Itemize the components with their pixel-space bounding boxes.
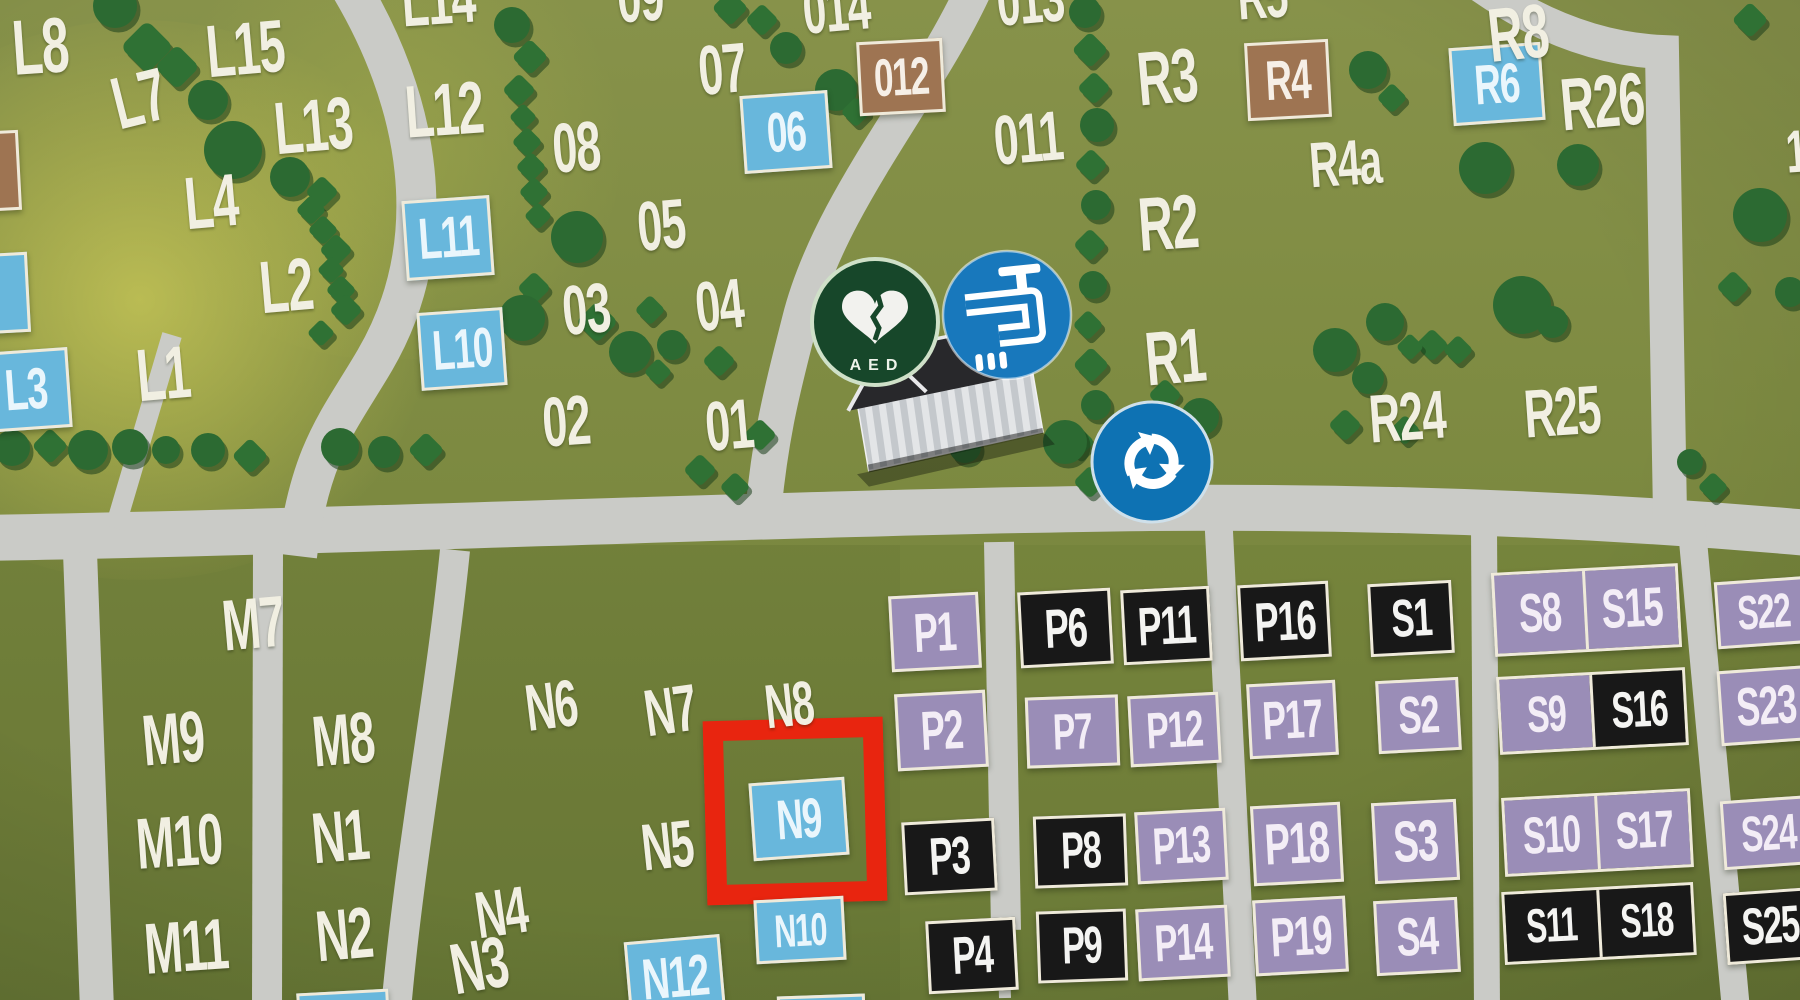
tree — [1313, 328, 1357, 372]
tree — [112, 429, 148, 465]
site-box-N12: N12 — [624, 934, 727, 1000]
site-box-P11: P11 — [1120, 585, 1213, 665]
site-box-P13: P13 — [1134, 808, 1229, 885]
tree — [191, 433, 225, 467]
site-label-01: 01 — [702, 388, 755, 462]
site-box-P2: P2 — [894, 689, 989, 771]
site-label-N4: N4 — [471, 876, 531, 949]
tree — [770, 32, 802, 64]
recycling-icon — [1092, 402, 1212, 522]
site-label-R1: R1 — [1142, 318, 1208, 399]
site-label-R24: R24 — [1367, 380, 1448, 453]
site-box-P1: P1 — [888, 592, 982, 673]
tree — [657, 330, 687, 360]
road-main-horizontal — [0, 508, 1800, 538]
site-box-P16: P16 — [1237, 581, 1332, 662]
site-box-S3: S3 — [1370, 798, 1459, 883]
tree — [1733, 188, 1787, 242]
site-label-R5: R5 — [1235, 0, 1289, 30]
site-label-R8: R8 — [1484, 0, 1551, 75]
site-label-L13: L13 — [271, 86, 355, 166]
site-label-N7: N7 — [640, 674, 700, 747]
road-vertical-1 — [80, 552, 97, 1000]
site-box-S9: S9 — [1499, 675, 1593, 752]
site-box-P3: P3 — [901, 817, 998, 895]
tree — [68, 430, 108, 470]
site-label-L1: L1 — [134, 335, 193, 413]
site-box-S15: S15 — [1581, 566, 1678, 649]
site-box-P14: P14 — [1135, 905, 1231, 982]
site-label-R2: R2 — [1136, 184, 1201, 264]
site-box-06: 06 — [739, 90, 832, 174]
site-box-S4: S4 — [1373, 896, 1461, 975]
site-box-S25: S25 — [1722, 887, 1800, 965]
site-box-S8-S15: S8S15 — [1490, 563, 1681, 657]
tree — [1536, 306, 1568, 338]
site-label-N2: N2 — [313, 897, 375, 974]
site-box-012: 012 — [856, 38, 946, 116]
tree — [368, 436, 400, 468]
site-label-L4: L4 — [182, 163, 241, 241]
site-label-014: 014 — [800, 0, 872, 44]
site-box-S24: S24 — [1719, 794, 1800, 869]
site-box-P4: P4 — [925, 916, 1019, 994]
tree — [499, 295, 545, 341]
site-box-S23: S23 — [1716, 664, 1800, 745]
site-label-N1: N1 — [309, 799, 371, 876]
site-box-N10: N10 — [753, 896, 846, 965]
site-label-N8: N8 — [762, 673, 816, 740]
site-box-L3: L3 — [0, 347, 73, 433]
site-box-P6: P6 — [1017, 588, 1114, 669]
tree — [1366, 303, 1404, 341]
site-box-P17: P17 — [1246, 679, 1339, 759]
tree — [321, 428, 359, 466]
site-box-P12: P12 — [1127, 691, 1222, 767]
site-label-08: 08 — [550, 110, 602, 183]
site-box-S18: S18 — [1596, 885, 1694, 957]
campground-map: AED L11L10L3606012R4R6N9N10N12P1P6P11P — [0, 0, 1800, 1000]
site-label-N6: N6 — [521, 669, 580, 741]
site-box-P9: P9 — [1036, 908, 1128, 983]
site-box-S11: S11 — [1504, 890, 1599, 962]
site-label-M11: M11 — [142, 908, 230, 986]
site-box-S2: S2 — [1375, 676, 1462, 753]
site-label-04: 04 — [692, 268, 746, 343]
site-label-R26: R26 — [1557, 62, 1646, 143]
tree — [1081, 190, 1111, 220]
site-box-S8: S8 — [1494, 571, 1585, 653]
site-box-P7: P7 — [1024, 694, 1119, 768]
site-box-S17: S17 — [1594, 791, 1691, 869]
site-label-07: 07 — [695, 32, 748, 106]
tree — [1079, 271, 1107, 299]
site-box-S22: S22 — [1714, 575, 1800, 649]
tree — [712, 0, 749, 26]
site-box-L11: L11 — [401, 195, 494, 281]
road-vertical-s2 — [1484, 528, 1487, 1000]
site-box-P19: P19 — [1252, 896, 1349, 977]
site-box-P8: P8 — [1032, 813, 1127, 888]
site-label-N5: N5 — [638, 809, 696, 880]
site-label-L2: L2 — [257, 247, 316, 325]
site-label-R4a: R4a — [1307, 129, 1383, 198]
site-box-R4: R4 — [1244, 39, 1332, 121]
site-label-M7: M7 — [219, 585, 287, 662]
tree — [551, 211, 603, 263]
site-box-S16: S16 — [1589, 670, 1686, 747]
tree — [1775, 277, 1800, 307]
site-label-L8: L8 — [9, 5, 70, 87]
tree — [1081, 390, 1111, 420]
site-label-L15: L15 — [203, 9, 287, 89]
site-box-P18: P18 — [1250, 802, 1344, 887]
site-label-R25: R25 — [1522, 375, 1603, 448]
tree — [1080, 108, 1114, 142]
site-label-L14: L14 — [399, 0, 477, 37]
site-box-N9: N9 — [748, 777, 849, 862]
site-box-S1: S1 — [1367, 579, 1455, 656]
site-box-L10: L10 — [416, 307, 507, 391]
tree — [1677, 449, 1703, 475]
site-label-M10: M10 — [134, 803, 225, 881]
tree — [609, 331, 651, 373]
site-label-09: 09 — [615, 0, 665, 34]
site-label-M8: M8 — [309, 701, 377, 778]
site-box-S10: S10 — [1504, 796, 1598, 874]
tree — [1459, 142, 1511, 194]
site-label-011: 011 — [991, 100, 1065, 176]
site-label-05: 05 — [634, 188, 687, 262]
site-box-S10-S17: S10S17 — [1501, 788, 1694, 877]
site-label-M9: M9 — [139, 700, 207, 777]
site-box-S11-S18: S11S18 — [1501, 882, 1697, 965]
aed-icon: AED — [812, 259, 938, 385]
site-label-03: 03 — [559, 272, 612, 346]
tree — [152, 436, 180, 464]
site-label-013: 013 — [994, 0, 1066, 36]
site-label-02: 02 — [540, 384, 592, 457]
tree — [1557, 144, 1599, 186]
tree — [494, 7, 530, 43]
tree — [1349, 51, 1387, 89]
site-label-L12: L12 — [403, 70, 486, 149]
site-box-S9-S16: S9S16 — [1496, 667, 1689, 755]
site-box-6: 6 — [0, 252, 31, 336]
site-label-R3: R3 — [1134, 38, 1200, 119]
aed-label: AED — [850, 357, 905, 374]
road-vertical-p — [999, 542, 1006, 930]
